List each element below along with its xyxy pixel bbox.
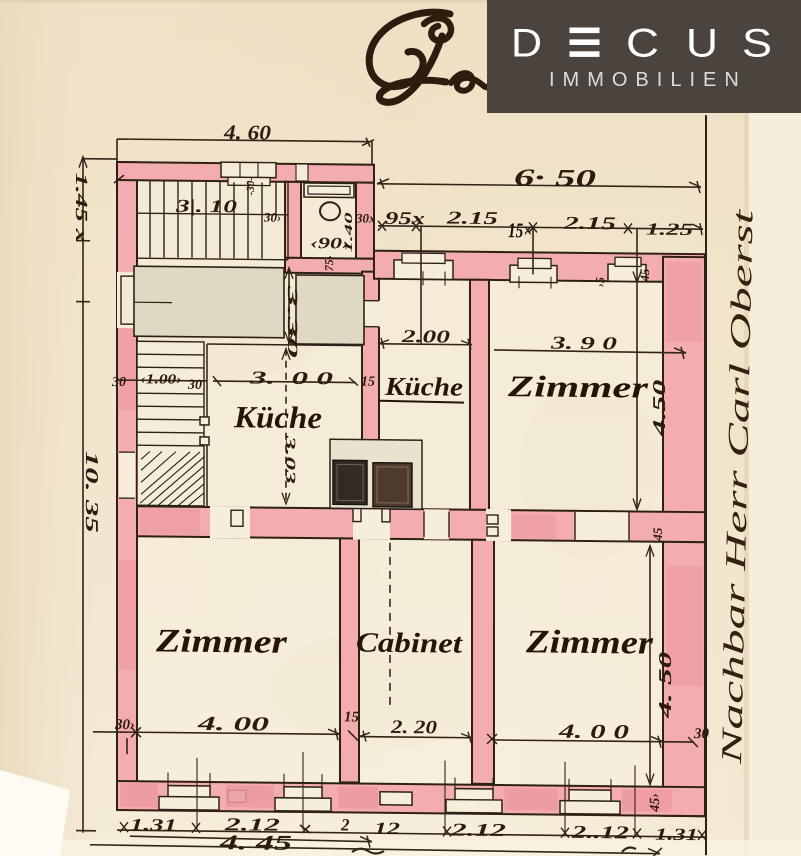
svg-text:30: 30: [111, 375, 126, 390]
svg-text:D: D: [511, 22, 542, 66]
svg-text:4. 00: 4. 00: [196, 713, 269, 736]
svg-text:15×: 15×: [508, 218, 532, 242]
svg-text:3. 9 0: 3. 9 0: [549, 333, 617, 354]
svg-text:2: 2: [340, 815, 350, 834]
svg-text:30x: 30x: [355, 211, 376, 226]
svg-text:2.12: 2.12: [449, 820, 506, 841]
svg-text:2.15: 2.15: [445, 207, 498, 228]
svg-text:30›: 30›: [114, 717, 135, 733]
svg-text:S: S: [742, 22, 772, 66]
svg-text:4. 60: 4. 60: [223, 120, 272, 145]
svg-text:C: C: [626, 22, 659, 66]
svg-text:‹1.00›: ‹1.00›: [140, 372, 182, 387]
svg-text:1.31: 1.31: [130, 815, 177, 834]
svg-text:15: 15: [344, 709, 359, 725]
svg-text:IMMOBILIEN: IMMOBILIEN: [549, 69, 747, 91]
svg-text:›5: ›5: [593, 277, 607, 287]
svg-text:4.50: 4.50: [649, 380, 669, 438]
svg-text:12: 12: [374, 819, 401, 838]
svg-text:Zimmer: Zimmer: [155, 623, 289, 660]
svg-text:3. 0 0: 3. 0 0: [248, 367, 333, 388]
svg-text:4. 50: 4. 50: [655, 652, 675, 720]
svg-text:Küche: Küche: [384, 372, 463, 402]
svg-text:Zimmer: Zimmer: [507, 370, 649, 404]
svg-text:1.40: 1.40: [343, 211, 355, 252]
svg-text:1.31: 1.31: [655, 825, 698, 844]
svg-text:95x: 95x: [385, 208, 425, 228]
svg-text:U: U: [686, 22, 718, 66]
svg-text:Cabinet: Cabinet: [356, 628, 463, 660]
svg-text:-30-: -30-: [245, 177, 257, 196]
svg-text:2. 20: 2. 20: [390, 717, 438, 739]
svg-text:3|. 10: 3|. 10: [174, 196, 237, 217]
svg-text:6· 50: 6· 50: [514, 165, 596, 192]
svg-text:1.25: 1.25: [646, 220, 694, 239]
svg-text:4. 0 0: 4. 0 0: [557, 721, 629, 744]
svg-text:1.45 x: 1.45 x: [72, 173, 91, 244]
svg-text:30: 30: [693, 726, 709, 742]
svg-text:30›: 30›: [263, 210, 281, 225]
svg-text:3.30: 3.30: [284, 283, 299, 358]
svg-text:45: 45: [650, 527, 665, 542]
svg-text:45›: 45›: [648, 793, 663, 813]
svg-text:75›: 75›: [322, 255, 336, 271]
svg-text:2.15: 2.15: [562, 213, 616, 234]
svg-text:2.00: 2.00: [400, 326, 450, 347]
svg-text:2..12: 2..12: [570, 822, 629, 843]
svg-text:30: 30: [187, 378, 202, 393]
svg-text:10. 35: 10. 35: [82, 451, 102, 533]
svg-text:45: 45: [637, 268, 652, 283]
svg-text:Zimmer: Zimmer: [525, 624, 655, 661]
svg-text:Küche: Küche: [233, 399, 322, 435]
svg-text:3.03: 3.03: [282, 434, 297, 484]
svg-text:15: 15: [361, 375, 375, 390]
svg-text:4. 45: 4. 45: [218, 830, 292, 855]
